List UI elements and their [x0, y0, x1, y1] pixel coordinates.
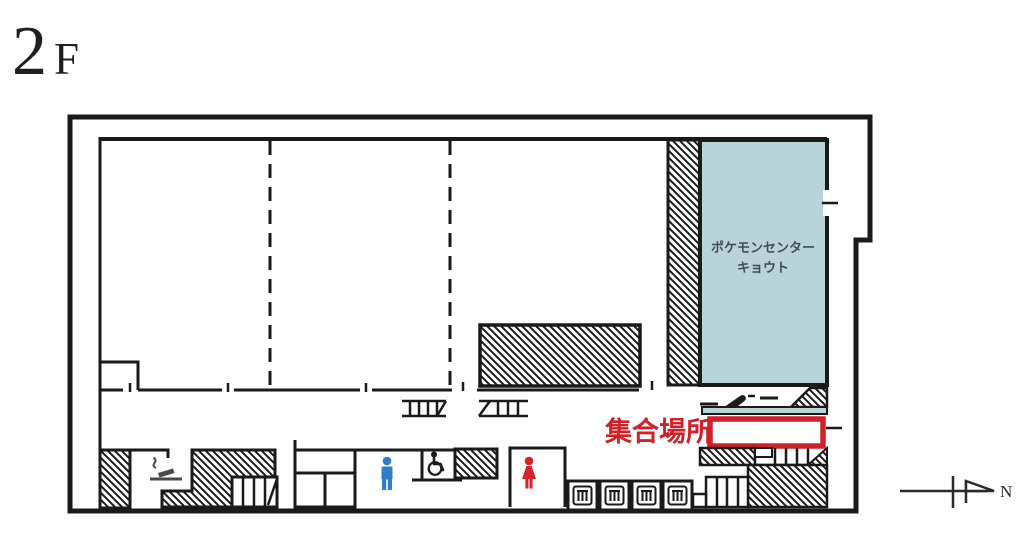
- meeting-point-label: 集合場所: [604, 416, 713, 448]
- compass-flag: [966, 481, 994, 491]
- stairs-lower-right: [693, 448, 827, 507]
- escalator-landing-strip: [702, 407, 827, 414]
- floor-plan-2f: 2 F ポケモンセンター キョウト: [0, 0, 1024, 533]
- hatched-block-far-left: [100, 450, 130, 508]
- hatched-service-strip: [668, 140, 700, 385]
- compass-north-label: N: [1000, 482, 1012, 501]
- floor-suffix-label: F: [54, 34, 79, 84]
- meeting-point-marker: [710, 419, 823, 446]
- store-area-pokemon-center: ポケモンセンター キョウト: [700, 140, 838, 385]
- floor-map-page: 2 F ポケモンセンター キョウト: [0, 0, 1024, 533]
- store-name-line1: ポケモンセンター: [711, 240, 815, 256]
- store-name-line2: キョウト: [737, 261, 789, 276]
- stairs-lower-left: [232, 477, 277, 507]
- floor-number-label: 2: [12, 13, 47, 90]
- hatched-block-restroom: [455, 449, 497, 478]
- hatched-block-central: [480, 325, 640, 386]
- north-compass: N: [900, 476, 1012, 508]
